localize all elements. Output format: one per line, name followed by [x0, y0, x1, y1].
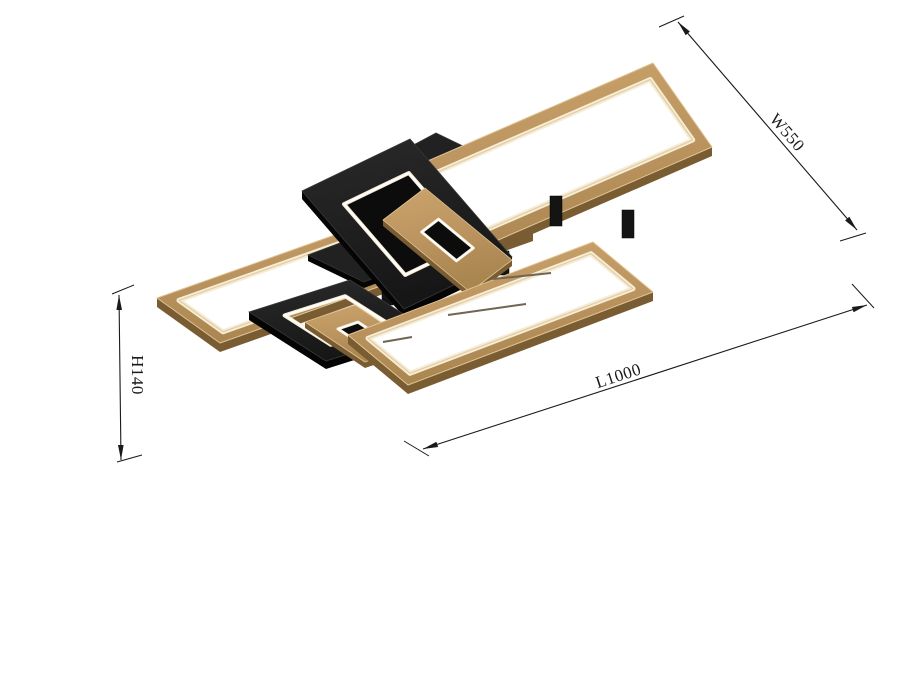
lamp-render	[157, 63, 712, 394]
dim-line-height	[119, 295, 121, 460]
dim-line-width	[678, 22, 857, 230]
drawing-stage: W550 L1000 H140	[0, 0, 900, 675]
technical-drawing: W550 L1000 H140	[0, 0, 900, 675]
arrowhead-height-start	[116, 295, 122, 310]
mount-stem-3	[550, 196, 562, 226]
dim-length-label: L1000	[593, 359, 643, 392]
page: { "dimensions": { "width": { "label": "W…	[0, 0, 900, 675]
arrowhead-height-end	[118, 445, 124, 460]
dim-height-label: H140	[128, 355, 147, 395]
mount-stem-5	[622, 210, 634, 238]
arrowhead-length-end	[852, 305, 867, 312]
extension-tick-width-2	[840, 233, 866, 241]
arrowhead-length-start	[423, 442, 438, 449]
extension-tick-length-2	[852, 284, 874, 308]
extension-tick-height-1	[112, 285, 134, 294]
